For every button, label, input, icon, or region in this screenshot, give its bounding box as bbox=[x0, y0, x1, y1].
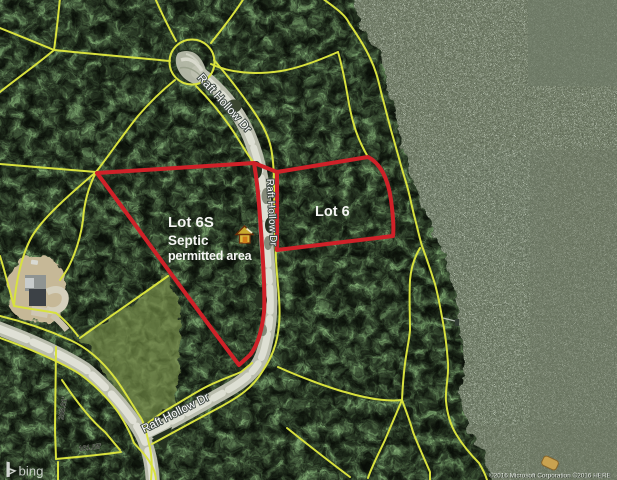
svg-text:Septic: Septic bbox=[168, 233, 209, 248]
svg-text:bing: bing bbox=[19, 464, 44, 479]
svg-text:permitted area: permitted area bbox=[168, 249, 253, 263]
svg-text:©2016 Microsoft Corporation ©2: ©2016 Microsoft Corporation ©2016 HERE bbox=[489, 471, 611, 479]
svg-text:Lot 6: Lot 6 bbox=[315, 204, 350, 220]
svg-text:Lot 6S: Lot 6S bbox=[168, 214, 214, 231]
